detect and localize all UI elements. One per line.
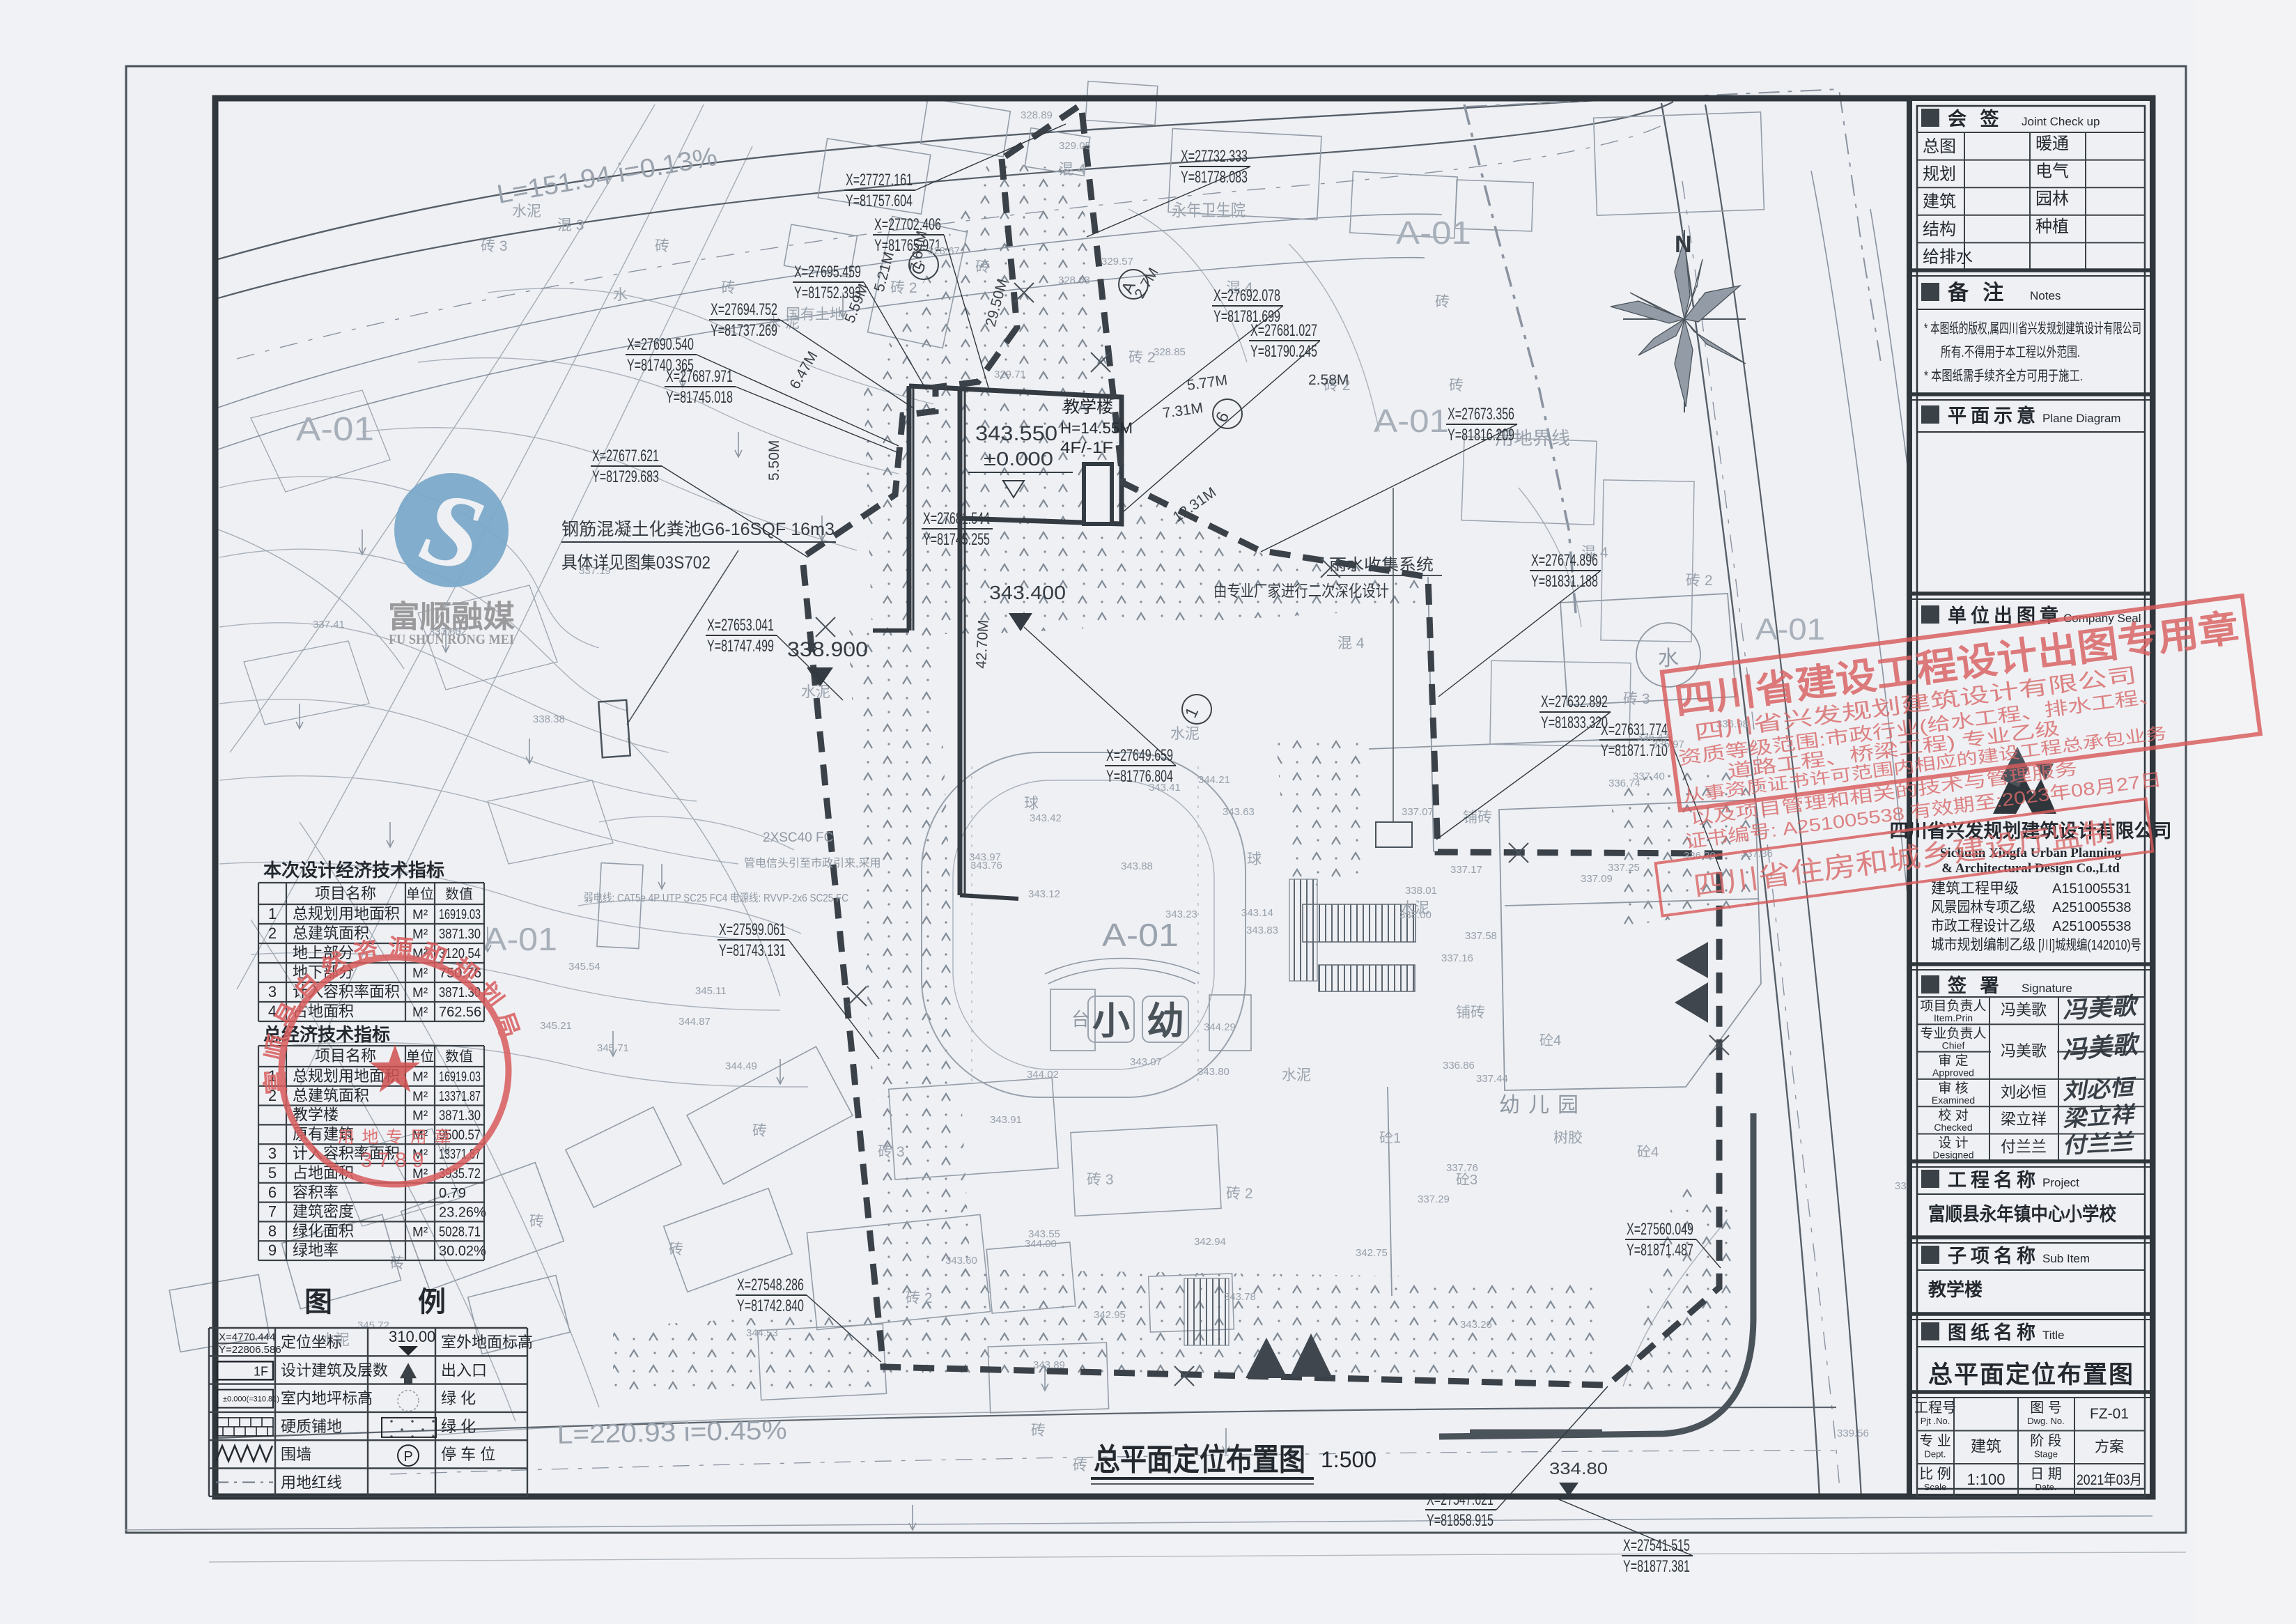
svg-text:Y=81747.499: Y=81747.499 [707,637,774,656]
svg-text:344.02: 344.02 [1027,1069,1059,1081]
svg-text:337.25: 337.25 [1608,862,1640,874]
svg-text:付兰兰: 付兰兰 [2062,1129,2137,1158]
svg-text:337.41: 337.41 [313,619,345,631]
svg-text:冯美歌: 冯美歌 [2001,1001,2047,1019]
svg-text:337.16: 337.16 [1441,952,1473,964]
svg-text:9: 9 [268,1242,277,1259]
svg-text:337.29: 337.29 [1418,1193,1450,1205]
svg-text:* 本图纸需手续齐全方可用于施工.: * 本图纸需手续齐全方可用于施工. [1924,368,2083,384]
svg-text:7: 7 [268,1203,277,1221]
svg-text:砼4: 砼4 [1637,1144,1659,1160]
svg-text:Scale: Scale [1924,1482,1947,1492]
svg-text:用 地 专 用 章: 用 地 专 用 章 [338,1128,453,1147]
svg-text:A-01: A-01 [1102,917,1179,953]
svg-text:Joint Check up: Joint Check up [2022,115,2100,128]
svg-text:硬质铺地: 硬质铺地 [281,1418,342,1435]
svg-text:Item.Prin: Item.Prin [1934,1012,1973,1023]
svg-text:Y=81778.083: Y=81778.083 [1181,168,1248,187]
svg-text:1F: 1F [254,1364,268,1378]
svg-text:X=27541.515: X=27541.515 [1623,1536,1690,1555]
svg-text:1: 1 [268,905,277,922]
svg-text:签 署: 签 署 [1948,975,2003,996]
svg-text:砼4: 砼4 [1539,1033,1561,1049]
svg-text:M²: M² [412,1109,428,1124]
svg-text:冯美歌: 冯美歌 [2001,1042,2047,1060]
svg-text:图纸名称: 图纸名称 [1948,1322,2040,1343]
svg-text:338.01: 338.01 [1405,885,1437,897]
svg-text:绿 化: 绿 化 [441,1390,476,1407]
svg-text:Plane Diagram: Plane Diagram [2042,412,2120,425]
svg-text:暖通: 暖通 [2035,134,2069,153]
svg-text:Y=81745.255: Y=81745.255 [923,530,990,549]
svg-text:冯美歌: 冯美歌 [2062,993,2141,1024]
svg-text:X=4770.444: X=4770.444 [219,1331,275,1343]
svg-text:水: 水 [1658,647,1679,670]
svg-text:结构: 结构 [1923,220,1956,239]
svg-text:Pjt .No.: Pjt .No. [1921,1416,1950,1426]
svg-text:钢筋混凝土化粪池G6-16SQF 16m3: 钢筋混凝土化粪池G6-16SQF 16m3 [561,520,835,539]
svg-text:3: 3 [268,1145,277,1162]
svg-text:例: 例 [418,1287,446,1317]
svg-text:校 对: 校 对 [1938,1108,1968,1123]
svg-text:42.70M: 42.70M [973,619,992,669]
svg-text:水泥: 水泥 [801,684,830,700]
svg-text:5.50M: 5.50M [766,440,782,481]
svg-text:专业负责人: 专业负责人 [1920,1026,1986,1041]
svg-text:教学楼: 教学楼 [293,1106,339,1124]
svg-text:本次设计经济技术指标: 本次设计经济技术指标 [263,860,444,881]
svg-text:Y=81831.188: Y=81831.188 [1531,572,1598,591]
svg-text:绿化面积: 绿化面积 [293,1222,354,1239]
svg-text:3789: 3789 [361,1149,430,1172]
svg-text:数值: 数值 [445,1049,473,1065]
svg-text:328.89: 328.89 [1021,109,1053,121]
svg-text:345.72: 345.72 [357,1320,389,1331]
svg-text:管电信头引至市政引来,采用: 管电信头引至市政引来,采用 [744,857,881,869]
svg-text:梁立祥: 梁立祥 [2063,1102,2138,1131]
svg-text:X=27653.041: X=27653.041 [707,616,774,635]
svg-text:5028.71: 5028.71 [439,1224,481,1239]
svg-text:345.71: 345.71 [597,1042,629,1054]
svg-text:项目负责人: 项目负责人 [1920,998,1986,1014]
svg-text:A-01: A-01 [1396,215,1471,251]
svg-text:337.09: 337.09 [1581,873,1613,885]
svg-text:混 4: 混 4 [1337,635,1365,651]
svg-text:项目名称: 项目名称 [315,1047,376,1065]
svg-text:永年卫生院: 永年卫生院 [1172,201,1246,220]
svg-text:工程号: 工程号 [1914,1400,1956,1416]
svg-text:X=27632.892: X=27632.892 [1541,693,1608,711]
svg-text:审 核: 审 核 [1938,1081,1968,1096]
svg-text:刘必恒: 刘必恒 [2062,1075,2137,1104]
svg-text:停 车 位: 停 车 位 [441,1446,495,1463]
svg-text:343.550: 343.550 [975,422,1057,445]
svg-text:砖 3: 砖 3 [1087,1172,1114,1188]
svg-text:337.07: 337.07 [1402,806,1434,818]
svg-text:16919.03: 16919.03 [439,907,481,922]
svg-text:方案: 方案 [2095,1439,2124,1455]
svg-text:定位坐标: 定位坐标 [281,1333,342,1351]
svg-text:图 号: 图 号 [2030,1400,2062,1416]
svg-text:Project: Project [2042,1176,2079,1189]
svg-text:344.49: 344.49 [725,1060,757,1072]
svg-text:总平面定位布置图: 总平面定位布置图 [1094,1443,1305,1477]
svg-text:16919.03: 16919.03 [439,1069,481,1085]
svg-text:总建筑面积: 总建筑面积 [293,1087,369,1104]
svg-text:30.02%: 30.02% [439,1244,486,1259]
svg-text:Dept.: Dept. [1924,1449,1946,1460]
svg-text:FZ-01: FZ-01 [2090,1406,2129,1422]
svg-text:砖 2: 砖 2 [1686,573,1713,589]
svg-text:343.60: 343.60 [945,1255,977,1267]
svg-text:室内地坪标高: 室内地坪标高 [281,1390,373,1407]
svg-text:由专业厂家进行二次深化设计: 由专业厂家进行二次深化设计 [1213,582,1389,600]
svg-text:343.14: 343.14 [1241,907,1273,919]
svg-text:单位: 单位 [406,1049,434,1065]
svg-text:建筑工程甲级: 建筑工程甲级 [1931,881,2019,897]
svg-text:Y=81743.131: Y=81743.131 [719,941,786,960]
svg-text:343.42: 343.42 [1030,812,1062,824]
svg-text:小: 小 [1092,1000,1130,1042]
svg-text:A251005538: A251005538 [2052,900,2131,915]
svg-text:337.44: 337.44 [1476,1073,1508,1085]
svg-text:343.400: 343.400 [989,582,1066,603]
svg-text:Title: Title [2042,1329,2065,1342]
svg-text:344.29: 344.29 [1204,1021,1236,1033]
svg-text:3871.30: 3871.30 [439,1108,481,1124]
svg-text:球: 球 [1024,796,1039,812]
svg-text:室外地面标高: 室外地面标高 [441,1333,533,1351]
svg-text:FU SHUN RONG MEI: FU SHUN RONG MEI [389,632,514,647]
svg-text:树胶: 树胶 [1553,1130,1583,1146]
svg-text:A-01: A-01 [1374,403,1449,439]
svg-text:Y=81745.018: Y=81745.018 [666,388,733,407]
svg-text:345.11: 345.11 [695,985,727,997]
svg-text:A-01: A-01 [296,411,374,448]
svg-text:绿 化: 绿 化 [441,1418,476,1435]
svg-text:M²: M² [412,1005,428,1020]
svg-text:344.00: 344.00 [1025,1238,1057,1250]
svg-text:337.19: 337.19 [579,565,611,577]
svg-text:铺砖: 铺砖 [1456,1005,1485,1021]
svg-text:337.76: 337.76 [1446,1162,1478,1174]
svg-text:X=27674.896: X=27674.896 [1531,551,1598,570]
svg-text:343.97: 343.97 [969,851,1001,863]
svg-text:343.26: 343.26 [1460,1319,1492,1331]
svg-text:台: 台 [1071,1009,1089,1030]
svg-text:规划: 规划 [1923,165,1956,184]
svg-text:砖: 砖 [752,1123,767,1139]
svg-text:水: 水 [613,287,628,303]
svg-text:N: N [1675,231,1692,258]
svg-text:水泥: 水泥 [512,203,541,219]
svg-text:344.53: 344.53 [746,1327,778,1339]
svg-text:328.85: 328.85 [1154,346,1186,358]
svg-text:A251005538: A251005538 [2052,919,2131,934]
svg-text:1:500: 1:500 [1321,1447,1376,1472]
svg-text:1:100: 1:100 [1967,1471,2005,1488]
svg-text:所有.不得用于本工程以外范围.: 所有.不得用于本工程以外范围. [1941,344,2080,360]
svg-text:日 期: 日 期 [2030,1467,2062,1482]
svg-text:项目名称: 项目名称 [315,885,376,902]
svg-text:水泥: 水泥 [1170,726,1200,742]
svg-text:Chief: Chief [1942,1039,1965,1051]
svg-text:4F/-1F: 4F/-1F [1060,439,1113,456]
svg-text:337.17: 337.17 [1450,864,1482,876]
svg-text:M²: M² [412,1225,428,1239]
svg-text:铺砖: 铺砖 [1463,810,1492,826]
svg-text:337.40: 337.40 [1633,771,1665,782]
svg-text:付兰兰: 付兰兰 [2001,1138,2047,1156]
svg-text:Signature: Signature [2022,982,2072,995]
svg-text:343.12: 343.12 [1028,888,1060,900]
svg-text:344.87: 344.87 [678,1016,711,1028]
svg-text:328.63: 328.63 [1058,274,1090,286]
svg-text:Notes: Notes [2030,289,2061,302]
svg-text:砖: 砖 [1031,1423,1046,1439]
svg-text:比 例: 比 例 [1919,1466,1951,1482]
svg-text:345.54: 345.54 [568,961,600,973]
svg-text:* 本图纸的版权,属四川省兴发规划建筑设计有限公司: * 本图纸的版权,属四川省兴发规划建筑设计有限公司 [1924,320,2141,337]
svg-text:H=14.55M: H=14.55M [1060,419,1133,437]
svg-text:X=27732.333: X=27732.333 [1181,147,1248,166]
svg-text:教学楼: 教学楼 [1928,1279,1983,1300]
svg-text:329.05: 329.05 [1059,140,1091,152]
svg-text:X=27687.971: X=27687.971 [666,367,733,386]
svg-text:刘必恒: 刘必恒 [2001,1083,2047,1101]
svg-text:砖: 砖 [1073,1457,1087,1474]
svg-text:平面示意: 平面示意 [1948,405,2040,426]
svg-text:3: 3 [268,983,277,1000]
svg-text:工程名称: 工程名称 [1948,1169,2040,1191]
svg-text:Y=22806.586: Y=22806.586 [219,1344,281,1356]
svg-text:338.38: 338.38 [533,713,565,725]
svg-text:Checked: Checked [1934,1122,1972,1133]
svg-text:X=27695.459: X=27695.459 [794,263,861,281]
svg-text:审 定: 审 定 [1938,1053,1968,1069]
svg-text:阶 段: 阶 段 [2030,1433,2062,1449]
svg-text:教学楼: 教学楼 [1063,398,1113,417]
svg-text:5: 5 [268,1164,277,1182]
svg-text:设计建筑及层数: 设计建筑及层数 [281,1361,388,1379]
svg-text:砼3: 砼3 [1456,1172,1477,1188]
svg-text:子项名称: 子项名称 [1948,1245,2040,1267]
svg-text:球: 球 [1247,851,1262,867]
svg-text:X=27692.078: X=27692.078 [1213,286,1280,305]
svg-text:0.79: 0.79 [439,1186,466,1201]
svg-text:8: 8 [268,1222,277,1239]
svg-text:砖: 砖 [1449,378,1464,394]
svg-text:M²: M² [412,1070,428,1085]
svg-text:X=27677.621: X=27677.621 [592,447,659,465]
svg-text:3871.30: 3871.30 [439,927,481,942]
svg-text:[川]城规编(142010)号: [川]城规编(142010)号 [2038,937,2141,953]
svg-text:富顺县永年镇中心小学校: 富顺县永年镇中心小学校 [1928,1203,2116,1225]
svg-text:343.91: 343.91 [990,1114,1022,1126]
svg-text:X=27649.659: X=27649.659 [1106,746,1173,765]
svg-text:M²: M² [412,966,428,981]
svg-text:砼1: 砼1 [1379,1130,1401,1146]
svg-text:343.07: 343.07 [1130,1056,1162,1068]
svg-text:砖 3: 砖 3 [878,1144,905,1160]
svg-text:Y=81729.683: Y=81729.683 [592,467,659,486]
svg-text:砖 2: 砖 2 [1128,350,1156,366]
svg-text:310.00: 310.00 [389,1328,435,1345]
svg-text:2.58M: 2.58M [1308,372,1349,388]
svg-text:Y=81877.381: Y=81877.381 [1623,1557,1690,1576]
svg-text:砖: 砖 [390,1255,405,1271]
svg-text:出入口: 出入口 [441,1361,487,1379]
svg-text:343.78: 343.78 [1224,1291,1256,1303]
svg-text:建筑: 建筑 [1923,192,1956,211]
svg-text:砖: 砖 [529,1214,544,1230]
svg-text:343.89: 343.89 [1033,1359,1065,1371]
svg-text:Stage: Stage [2034,1449,2058,1460]
svg-text:342.94: 342.94 [1194,1236,1226,1248]
svg-text:砖: 砖 [721,280,736,296]
svg-text:343.41: 343.41 [1149,782,1181,794]
svg-text:X=27599.061: X=27599.061 [719,920,786,939]
svg-text:X=27548.286: X=27548.286 [737,1276,804,1294]
svg-text:砖 2: 砖 2 [890,280,917,296]
svg-text:X=27673.356: X=27673.356 [1448,405,1514,424]
svg-text:336.86: 336.86 [1443,1060,1475,1072]
svg-text:容积率: 容积率 [293,1184,339,1201]
svg-text:梁立祥: 梁立祥 [2001,1111,2047,1128]
svg-text:M²: M² [412,986,428,1000]
svg-text:总规划用地面积: 总规划用地面积 [293,905,400,922]
svg-text:种植: 种植 [2035,217,2069,236]
svg-text:用地红线: 用地红线 [281,1474,342,1492]
svg-text:342.75: 342.75 [1356,1247,1388,1259]
svg-text:Y=81737.269: Y=81737.269 [711,321,777,340]
svg-text:建筑: 建筑 [1971,1438,2001,1455]
svg-text:建筑密度: 建筑密度 [293,1203,354,1221]
svg-text:总图: 总图 [1923,137,1956,156]
svg-text:砖: 砖 [655,238,669,254]
svg-text:Date.: Date. [2035,1482,2056,1492]
svg-text:343.80: 343.80 [1197,1066,1230,1078]
svg-text:电气: 电气 [2035,162,2069,181]
svg-text:城市规划编制乙级: 城市规划编制乙级 [1931,937,2035,953]
svg-text:数值: 数值 [445,886,473,902]
svg-text:M²: M² [412,908,428,922]
svg-text:会 签: 会 签 [1948,108,2003,130]
svg-text:混 4: 混 4 [1059,162,1086,178]
svg-text:344.21: 344.21 [1198,774,1230,786]
svg-text:343.63: 343.63 [1223,806,1255,818]
svg-text:幼: 幼 [1147,1000,1184,1042]
svg-text:6: 6 [268,1184,277,1201]
svg-text:336.47: 336.47 [1637,732,1669,743]
svg-text:Y=81871.487: Y=81871.487 [1627,1241,1693,1260]
svg-text:水泥: 水泥 [1282,1067,1311,1083]
svg-text:图: 图 [304,1287,332,1317]
svg-text:±0.000(=310.81): ±0.000(=310.81) [223,1395,279,1404]
svg-text:混 3: 混 3 [557,217,584,233]
svg-text:X=27681.027: X=27681.027 [1250,321,1317,340]
svg-text:给排水: 给排水 [1923,247,1973,266]
svg-text:2XSC40 FC: 2XSC40 FC [763,830,833,845]
svg-text:343.83: 343.83 [1246,925,1278,936]
svg-text:国有土地: 国有土地 [786,307,844,323]
svg-text:园林: 园林 [2035,190,2069,208]
svg-text:备 注: 备 注 [1948,281,2008,304]
svg-text:329.57: 329.57 [1101,256,1133,268]
svg-text:砖 3: 砖 3 [481,238,508,254]
svg-text:X=27702.406: X=27702.406 [874,215,941,234]
svg-text:Dwg. No.: Dwg. No. [2027,1416,2064,1426]
svg-text:Y=81742.840: Y=81742.840 [737,1297,804,1315]
svg-text:Y=81816.209: Y=81816.209 [1448,426,1514,444]
svg-text:338.00: 338.00 [1399,909,1432,921]
svg-text:343.88: 343.88 [1121,860,1153,872]
svg-text:±0.000: ±0.000 [984,448,1053,470]
svg-text:339.56: 339.56 [1837,1428,1869,1439]
svg-text:Y=81858.915: Y=81858.915 [1427,1511,1494,1530]
svg-text:砖 2: 砖 2 [1226,1186,1253,1202]
svg-text:334.80: 334.80 [1549,1460,1608,1478]
svg-text:M²: M² [412,1090,428,1104]
svg-text:23.26%: 23.26% [439,1205,486,1221]
svg-text:专 业: 专 业 [1919,1433,1951,1449]
svg-text:X=27690.540: X=27690.540 [627,335,694,354]
svg-text:X=27727.161: X=27727.161 [846,171,913,190]
svg-text:富顺融媒: 富顺融媒 [388,600,515,634]
svg-text:A151005531: A151005531 [2052,881,2131,897]
svg-text:砖 2: 砖 2 [906,1290,933,1306]
svg-text:X=27694.752: X=27694.752 [711,300,777,319]
svg-text:A-01: A-01 [483,921,557,957]
svg-text:Sub Item: Sub Item [2042,1252,2090,1265]
svg-text:风景园林专项乙级: 风景园林专项乙级 [1931,899,2035,915]
svg-text:X=27681.544: X=27681.544 [923,509,990,528]
svg-text:343.23: 343.23 [1165,908,1197,920]
svg-text:砖: 砖 [975,259,990,275]
svg-text:Examined: Examined [1932,1095,1975,1106]
svg-text:Designed: Designed [1932,1150,1973,1161]
svg-text:X=27560.049: X=27560.049 [1627,1220,1693,1239]
svg-text:Y=81757.604: Y=81757.604 [846,192,913,210]
svg-text:A-01: A-01 [1755,612,1825,647]
svg-text:762.56: 762.56 [439,1005,481,1020]
svg-text:345.21: 345.21 [540,1020,572,1032]
svg-text:砖 3: 砖 3 [1623,691,1650,707]
svg-text:单位: 单位 [406,886,434,902]
svg-text:围墙: 围墙 [281,1446,311,1463]
svg-text:幼儿园: 幼儿园 [1499,1094,1587,1117]
svg-text:砖: 砖 [1435,294,1450,310]
svg-text:设 计: 设 计 [1938,1136,1968,1151]
svg-text:Y=81833.320: Y=81833.320 [1541,713,1608,732]
svg-text:328.67: 328.67 [928,245,960,257]
svg-text:弱电线: CAT5e 4P UTP SC25 FC4 电源线: 弱电线: CAT5e 4P UTP SC25 FC4 电源线: RVVP-2x6… [584,892,848,904]
svg-text:L=220.93 i=0.45%: L=220.93 i=0.45% [557,1416,787,1450]
svg-text:市政工程设计乙级: 市政工程设计乙级 [1931,918,2035,934]
svg-text:342.95: 342.95 [1094,1309,1126,1321]
svg-text:329.71: 329.71 [994,369,1026,380]
svg-text:337.58: 337.58 [1465,930,1497,942]
svg-text:绿地率: 绿地率 [293,1242,339,1259]
svg-text:P: P [403,1449,412,1464]
svg-text:砖: 砖 [669,1242,683,1258]
svg-text:总平面定位布置图: 总平面定位布置图 [1928,1361,2134,1389]
svg-text:Approved: Approved [1932,1067,1974,1078]
svg-text:2: 2 [268,925,277,942]
svg-text:13371.87: 13371.87 [439,1089,481,1104]
svg-text:2021年03月: 2021年03月 [2077,1472,2142,1488]
